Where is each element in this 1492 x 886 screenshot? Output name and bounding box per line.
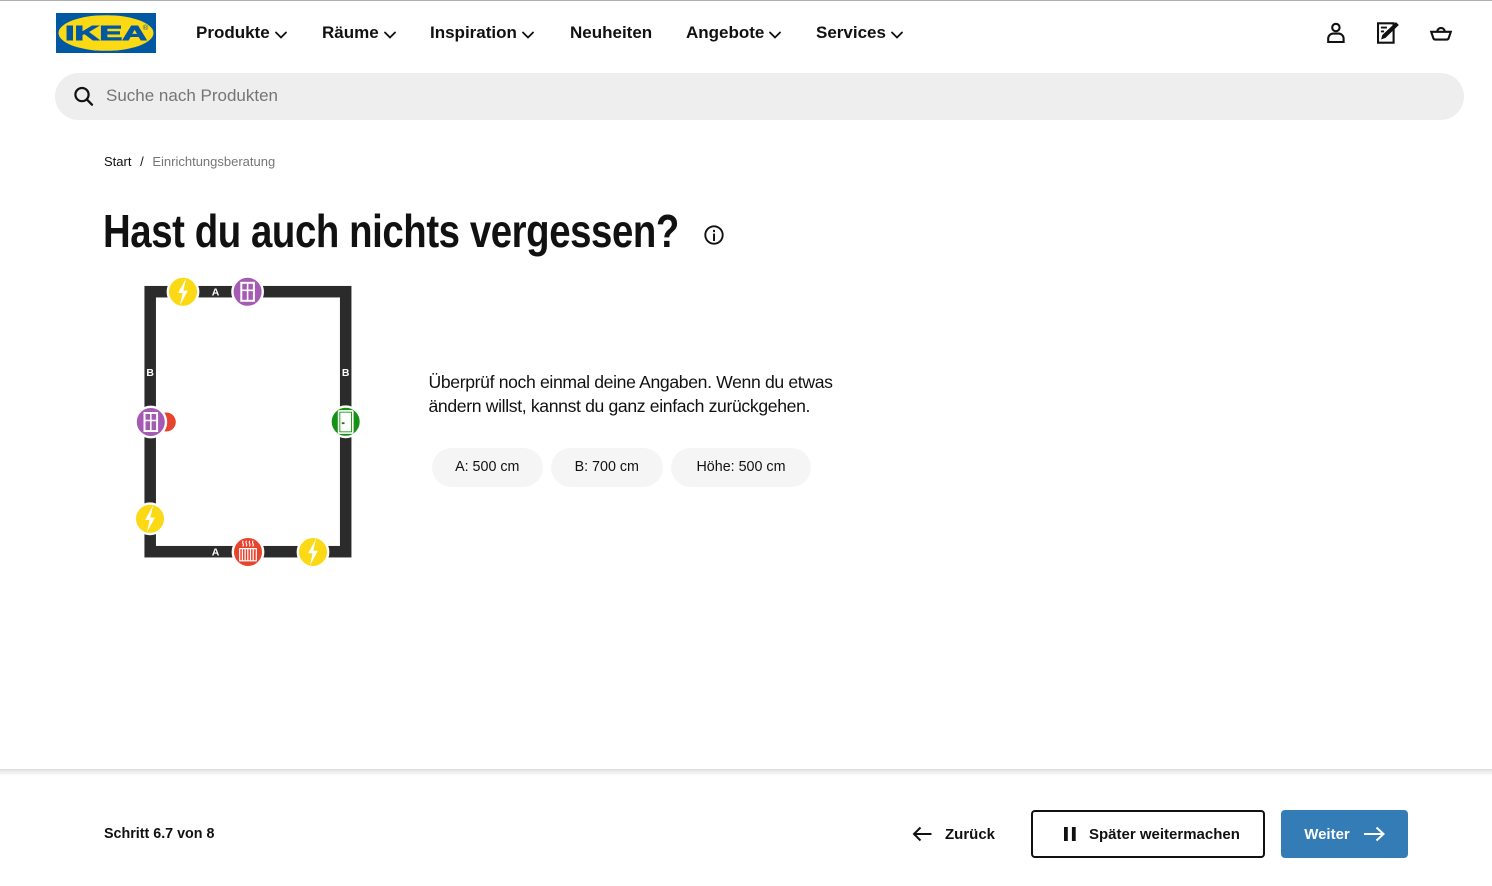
svg-text:B: B (146, 367, 154, 379)
svg-text:B: B (342, 367, 350, 379)
svg-text:A: A (212, 547, 220, 559)
svg-text:A: A (212, 287, 220, 299)
